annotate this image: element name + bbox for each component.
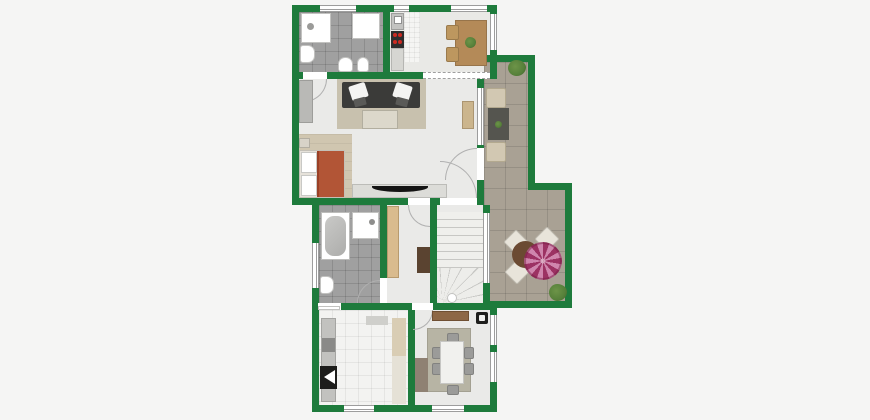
bed-pillow [301,175,317,196]
dining-chair [464,347,474,359]
laundry-counter [321,318,336,402]
door-opening [440,198,477,205]
laundry-runner [392,356,406,404]
nightstand [299,138,310,148]
terrace-lounge-chair [486,142,506,162]
parasol [524,242,562,280]
open-passage [423,72,490,79]
door-opening [408,198,430,205]
bidet [357,57,369,72]
bed-pillow [301,152,317,173]
dining-chair [464,363,474,375]
window [477,88,484,145]
sofa [342,82,420,108]
kitchen-sink-unit [391,13,404,30]
window [432,405,464,412]
kitchen-chair [446,25,459,40]
floor-plan-canvas [0,0,870,420]
wall-left-lower [312,303,319,412]
terrace-table [488,108,509,140]
wall-hall-stair [430,205,437,310]
dining-black-unit [476,312,488,324]
dining-sideboard [432,311,469,321]
stair-newel-post [447,293,457,303]
side-console [462,101,474,129]
shower [352,212,379,239]
wall-bath-kitchen [383,5,390,79]
stove [391,31,404,48]
window [490,352,497,382]
terrace-lounge-chair [486,88,506,108]
wall-left-upper [292,5,299,205]
kitchen-chair [446,47,459,62]
door-leaf [318,306,340,310]
laundry-runner [392,318,406,356]
bed-blanket [317,151,344,197]
door-opening [477,148,484,180]
window [320,5,356,12]
kitchen-tile-strip [404,12,420,62]
laundry-appliance [322,338,335,352]
dining-chair [447,385,459,395]
wall-cabinet [299,80,313,123]
door-opening [380,278,387,303]
window [483,213,490,283]
wall-terrace-right-upper [528,55,535,190]
window [394,5,409,12]
window [490,315,497,345]
window [451,5,487,12]
dining-table [440,341,464,384]
stair-treads [437,212,483,268]
bathtub [321,212,350,260]
window [312,243,319,288]
wall-cabinet [352,13,380,39]
stair-winders [437,268,483,303]
wall-terrace-bottom [484,301,572,308]
hall-wardrobe [387,206,399,278]
toilet [338,57,353,72]
wall-bottom [312,405,497,412]
laundry-mat [366,316,388,325]
taupe-cabinet [415,358,428,392]
door-opening [412,303,433,310]
kitchen-counter [391,48,404,71]
window [344,405,374,412]
laundry-machine [320,366,337,389]
door-opening [303,72,327,79]
shower-drain-icon [369,219,375,225]
hall-dresser [417,247,430,273]
window [490,14,497,50]
coffee-table [362,110,398,129]
bed [299,150,345,198]
shower-head-icon [307,23,314,30]
sink [300,45,315,63]
sink [320,276,334,294]
shower [301,13,331,43]
